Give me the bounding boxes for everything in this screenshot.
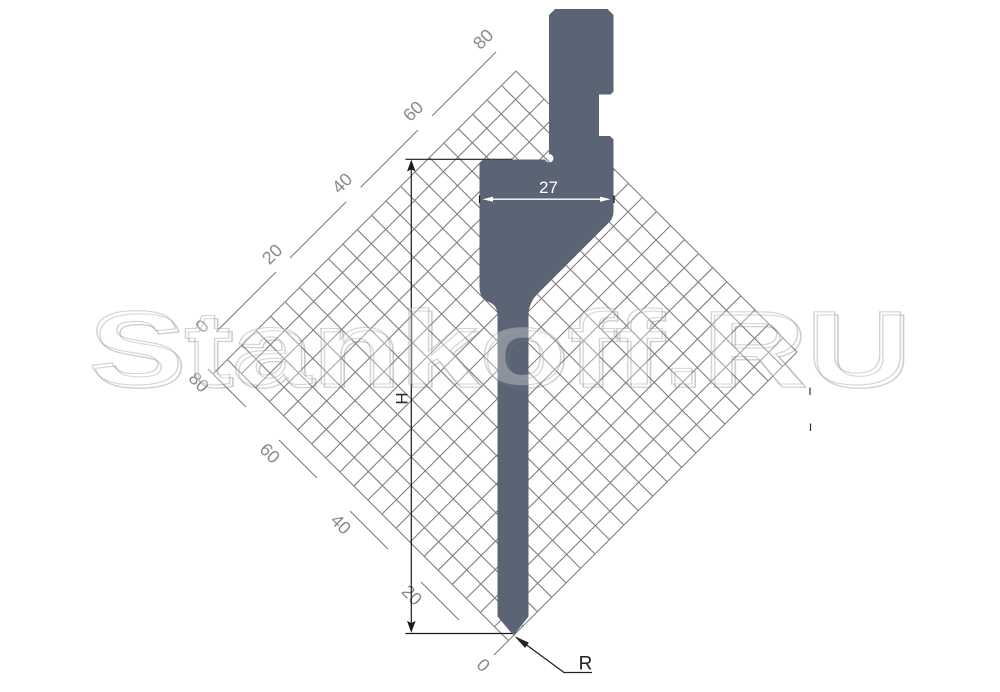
- svg-text:Stankoff.RU: Stankoff.RU: [88, 289, 909, 406]
- svg-text:R: R: [579, 654, 593, 675]
- svg-text:27: 27: [539, 178, 558, 197]
